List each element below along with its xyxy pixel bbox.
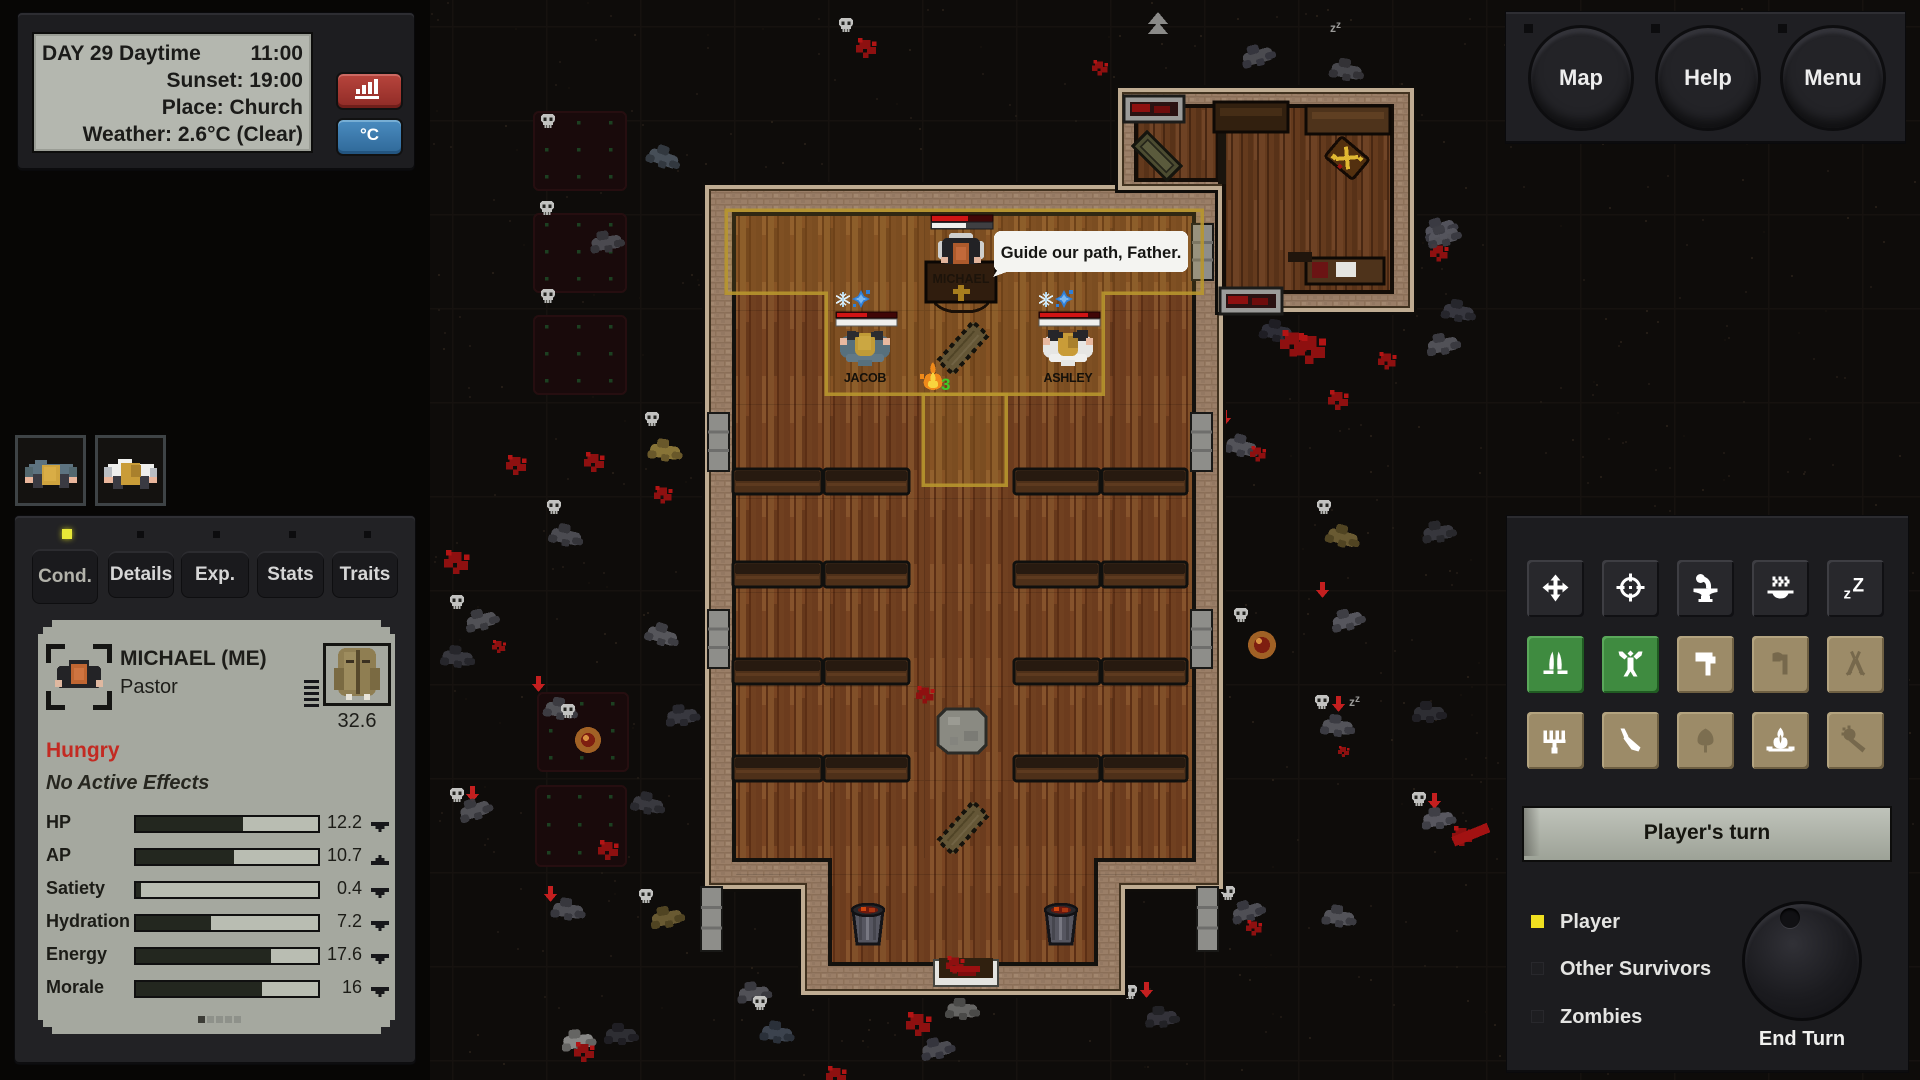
svg-text:ASHLEY: ASHLEY	[1044, 371, 1094, 385]
svg-text:Guide our path, Father.: Guide our path, Father.	[1001, 244, 1182, 262]
svg-text:z: z	[1336, 20, 1341, 31]
svg-text:JACOB: JACOB	[844, 371, 887, 385]
svg-text:MICHAEL: MICHAEL	[933, 272, 990, 286]
svg-text:3: 3	[941, 375, 950, 394]
svg-text:Z: Z	[1853, 576, 1865, 597]
svg-text:z: z	[1355, 694, 1360, 705]
svg-text:z: z	[1844, 586, 1852, 603]
